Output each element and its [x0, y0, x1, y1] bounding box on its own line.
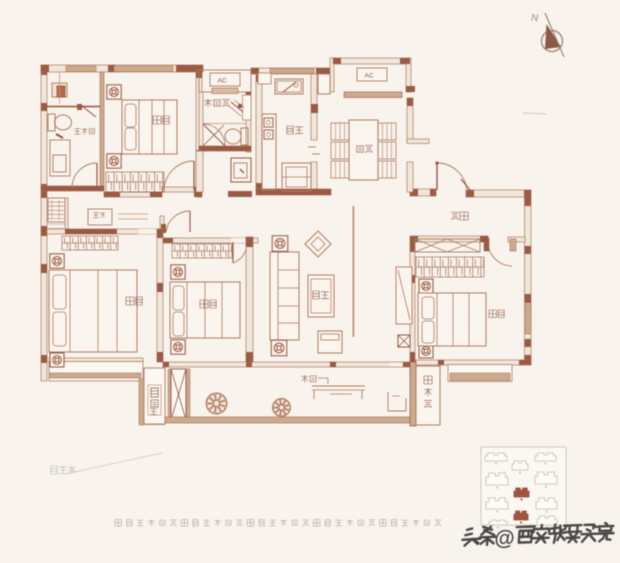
svg-text:@: @ [494, 526, 515, 550]
svg-text:N: N [531, 13, 539, 24]
svg-text:AC: AC [218, 78, 227, 85]
svg-text:AC: AC [365, 73, 374, 80]
